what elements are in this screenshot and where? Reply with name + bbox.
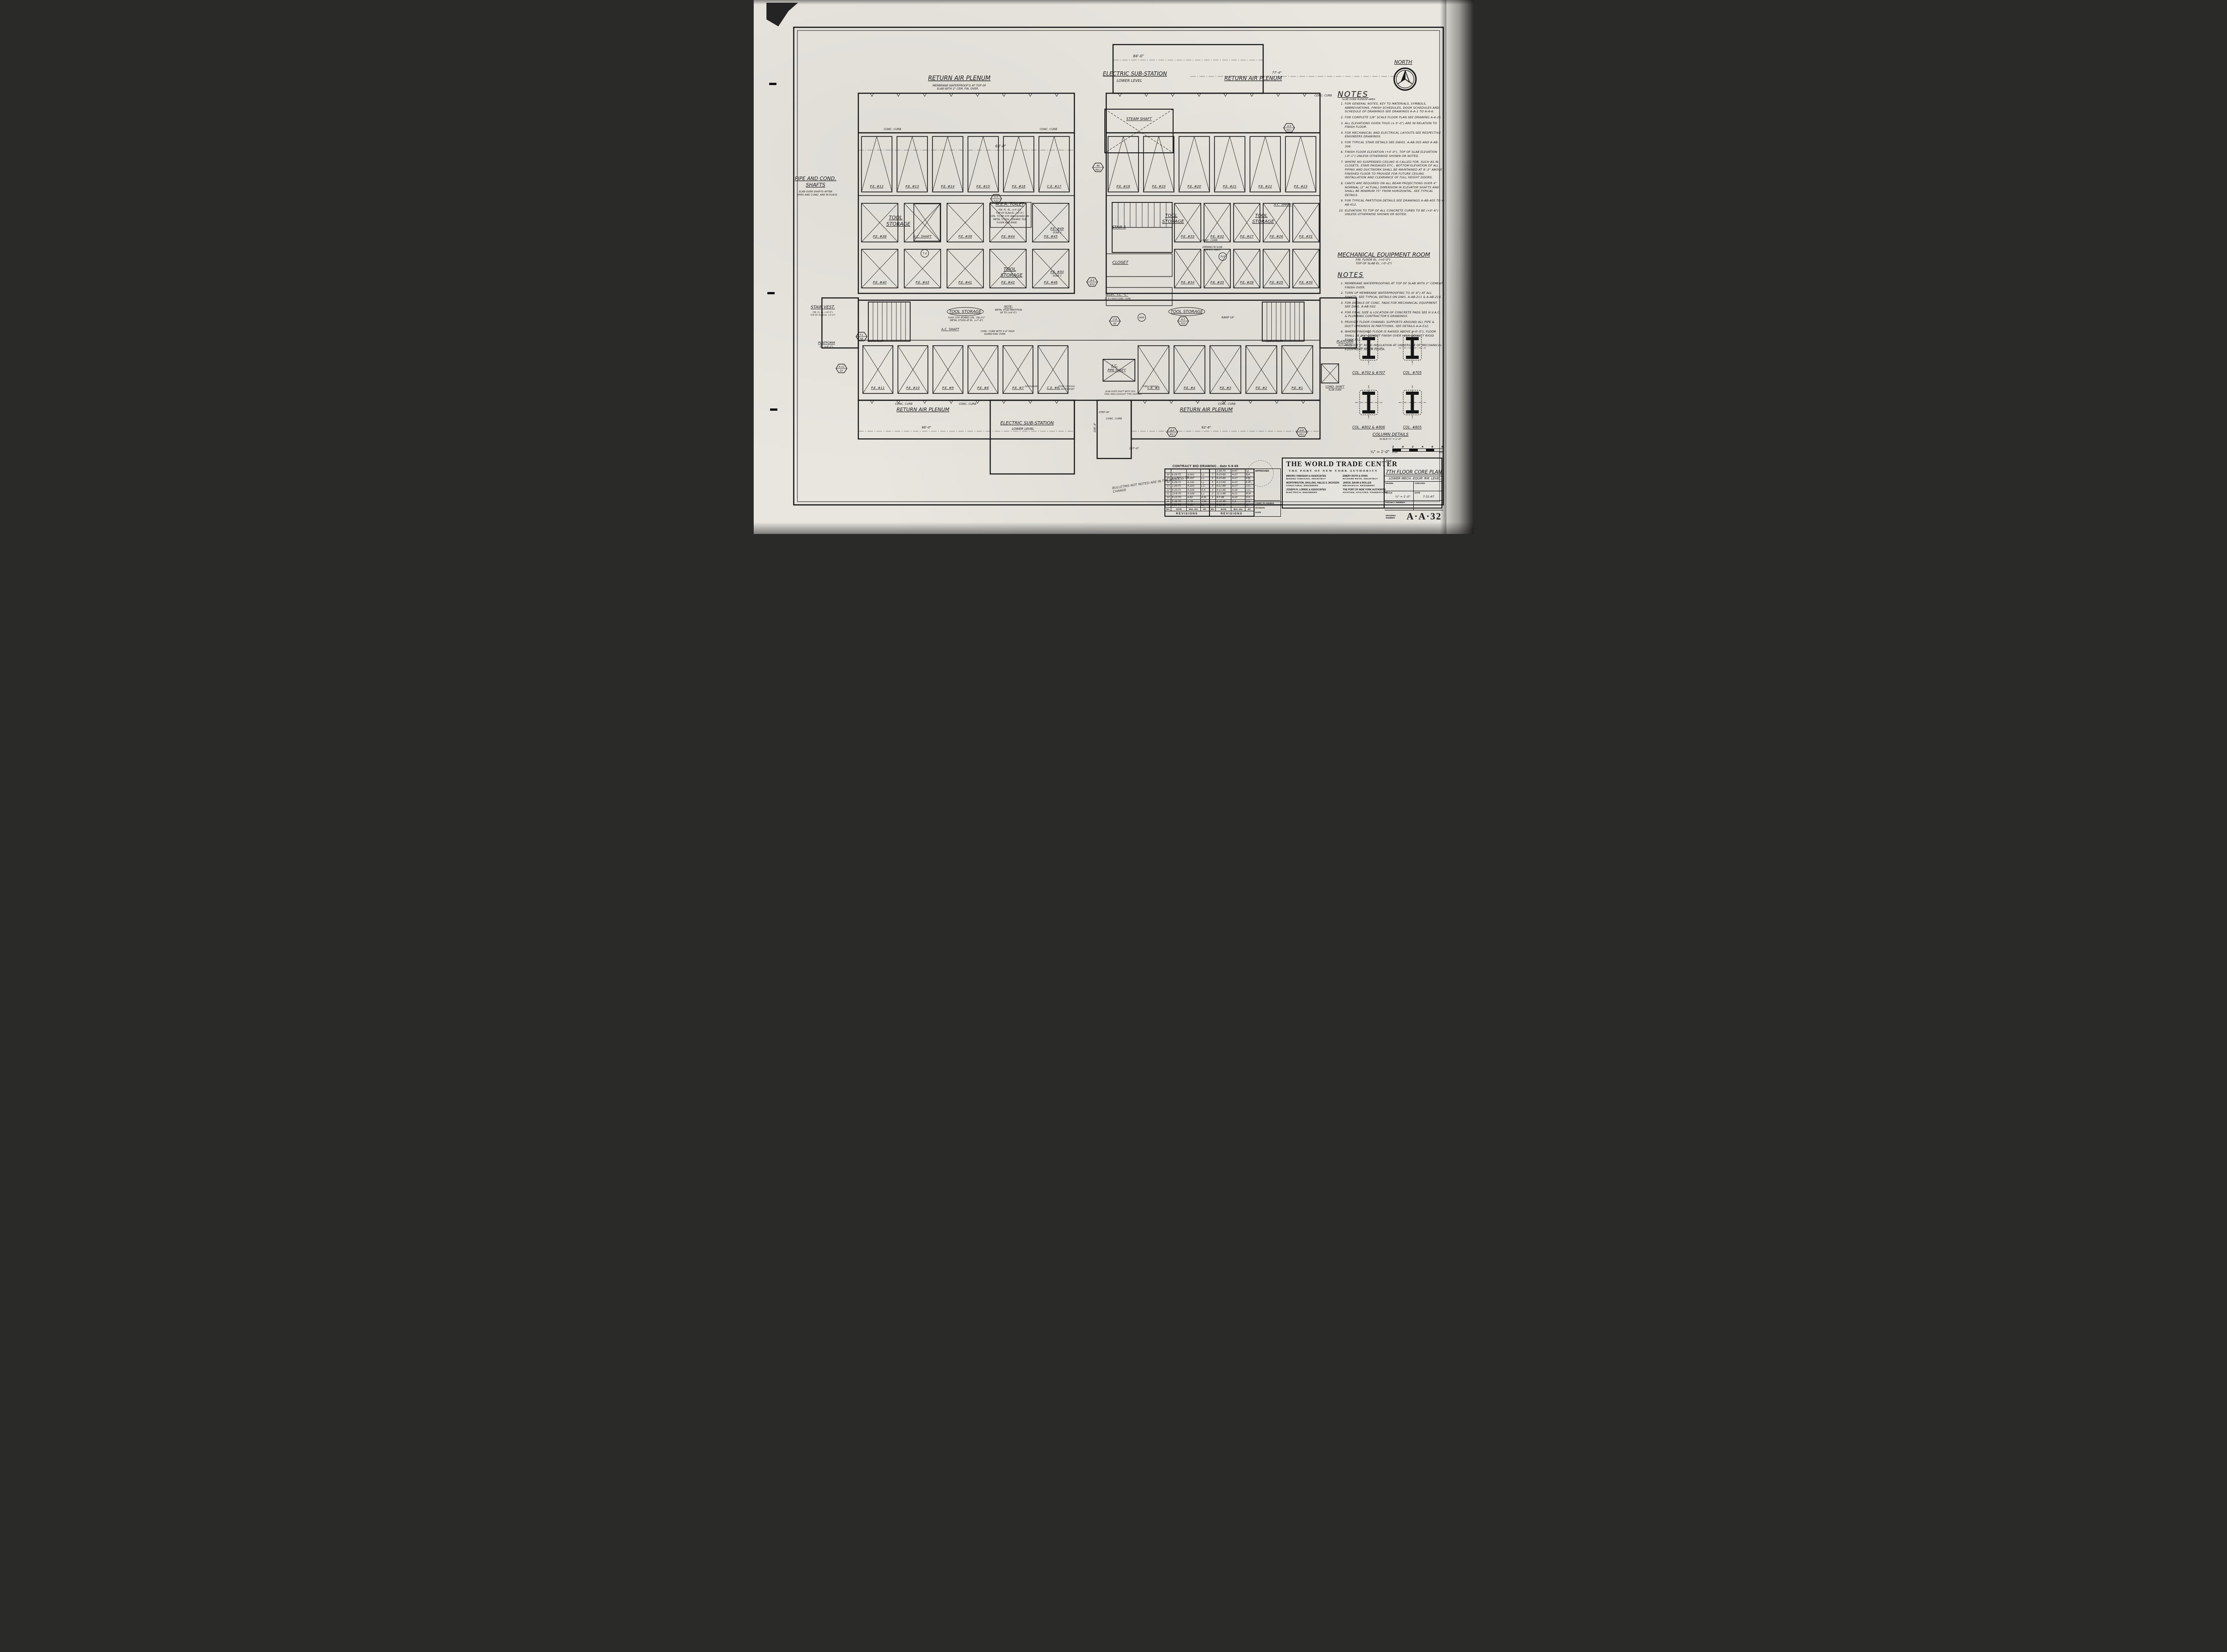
mer-elevation-line: TOP OF SLAB EL. (-0'-2") (1356, 262, 1443, 265)
revision-cell: D.G. (1245, 500, 1254, 504)
shaft-label: P.E. #9 (942, 386, 954, 390)
firm-list-left: MINORU YAMASAKI & ASSOCIATESMINORU YAMAS… (1286, 475, 1340, 495)
shaft-box (1003, 136, 1034, 192)
shaft-label: P.E. #38 (873, 234, 887, 238)
shaft-label: C.E. #6 (1047, 386, 1059, 390)
plan-label: TOP OF SLAB EL. (-0'-2") (810, 314, 835, 317)
shaft-label: P.E. #26 (1270, 234, 1283, 238)
shaft-mark (877, 136, 892, 192)
north-label: NORTH (1394, 59, 1412, 65)
col-detail-label: COL. #705 (1403, 371, 1421, 375)
plan-label: PLATFORM (818, 341, 835, 345)
hex-tag-top: A-4 (1089, 279, 1094, 282)
shaft-box (1039, 136, 1069, 192)
shaft-box (1179, 136, 1209, 192)
revision-cell: 10 (1165, 496, 1171, 499)
mer-elevations: FIN. FLOOR EL. (+0'-0")TOP OF SLAB EL. (… (1338, 258, 1443, 265)
plan-label: FIN. FL. EL. (+0'-2") (998, 209, 1021, 212)
note-item: FOR COMPLETE 1/8" SCALE FLOOR PLAN SEE D… (1345, 116, 1445, 120)
scan-artifact (767, 292, 775, 294)
revision-cell: 6-11-69 (1216, 484, 1231, 488)
revision-cell: L.J. (1200, 504, 1209, 507)
revision-cell: M.M. (1245, 492, 1254, 496)
shaft-mark (1194, 136, 1209, 192)
blueprint-sheet: P.E. #12P.E. #13P.E. #14P.E. #15P.E. #16… (754, 0, 1474, 534)
plan-label: ELECTRIC SUB-STATION (1103, 71, 1167, 77)
dimension-lines (858, 60, 1400, 431)
hex-tag-bottom: A1 (1113, 322, 1116, 325)
shaft-mark (862, 136, 877, 192)
shaft-label: P.E. #41 (958, 280, 972, 284)
shaft-label: P.E. #31 (1299, 234, 1313, 238)
bubble-label: 7·2 (922, 252, 927, 255)
revision-cell: A-27 (1231, 473, 1245, 477)
revision-cell: A-17 (1231, 477, 1245, 480)
revision-cell: 1 (1209, 496, 1216, 499)
revision-cell: A-17 (1231, 484, 1245, 488)
shaft-label: P.E. #39 (958, 234, 972, 238)
col-details-scale: SCALE ¾" = 1'-0" (1379, 438, 1401, 441)
scale-unit-left: scale (1392, 452, 1398, 454)
bubble-label: 707 (1220, 256, 1225, 258)
plan-label: 86'-0" (922, 426, 931, 429)
plan-label: FOR A.C. DUCT (1204, 249, 1221, 252)
revision-cell: L.J. (1200, 481, 1209, 484)
title-label: TITLE (1386, 459, 1392, 462)
plan-label: A.C. (1110, 364, 1117, 368)
plan-label: STEP UP (1098, 411, 1109, 414)
hex-tag-top: A-7 (1180, 318, 1185, 321)
project-title: THE WORLD TRADE CENTER (1286, 460, 1381, 468)
revision-cell: 6 (1209, 477, 1216, 480)
scan-edge (754, 522, 1474, 534)
plan-label: M.E.R. TOILET (995, 202, 1024, 207)
shaft-label: P.E. #44 (1001, 234, 1015, 238)
hex-tag-top: T-1 (860, 334, 863, 337)
shaft-label: P.E. #35 (1210, 280, 1224, 284)
shaft-mark (1214, 136, 1230, 192)
plan-label: EL. (+4'-1") (820, 346, 833, 348)
plan-label: RAMP UP (1221, 316, 1234, 319)
revision-cell: 8-23-69 (1216, 477, 1231, 480)
plan-label: SUSP. GYP. BOARD CEIL. ON 2½" (948, 316, 985, 319)
checked-label: CHECKED (1415, 482, 1425, 484)
stairs (868, 202, 1304, 341)
shaft-label: P.E. #45 (1044, 234, 1058, 238)
revision-cell: 9-23-69 (1216, 473, 1231, 477)
revision-cell: 2 (1209, 492, 1216, 496)
col-detail-label: COL. #702 & #707 (1352, 371, 1385, 375)
plan-label: TOP OF SLAB EL. (-0'-3") (996, 212, 1023, 215)
notes-list: FOR GENERAL NOTES, KEY TO MATERIALS, SYM… (1345, 102, 1445, 217)
plan-label: 63'-0" (995, 144, 1006, 148)
shaft-label: P.E. #8 (977, 386, 989, 390)
hex-tag-bottom: D7 (840, 370, 843, 373)
hex-tag-bottom: M11 (1169, 433, 1175, 436)
revision-cell: 7 (1209, 473, 1216, 477)
shaft-label: P.E. #2 (1255, 386, 1267, 390)
shaft-mark (932, 136, 948, 192)
shaft-box (932, 136, 963, 192)
revision-cell: L.J. (1200, 473, 1209, 477)
shaft-box (862, 136, 892, 192)
shaft-label: P.E. #7 (1012, 386, 1024, 390)
plan-label: TOOL (1255, 213, 1267, 218)
plan-label: CLOSET (1112, 261, 1129, 265)
shaft-label: P.E. #34 (1181, 280, 1194, 284)
plan-label: CONC. CURB (1039, 128, 1057, 131)
shaft-label: A.C. SHAFT (912, 234, 932, 238)
plan-label: ELECTRIC SUB-STATION (1000, 421, 1054, 426)
plan-label: COND. SHAFT (1325, 385, 1345, 388)
plan-label: RETURN AIR PLENUM (928, 75, 990, 82)
note-item: TURN UP MEMBRANE WATERPROOFING TO (0'-6"… (1345, 291, 1443, 299)
shaft-label: P.E. #33 (1181, 234, 1194, 238)
note-item: ALL ELEVATIONS GIVEN THUS (± 0'-0") ARE … (1345, 121, 1445, 129)
shaft-label: P.E. #23 (1294, 184, 1307, 188)
note-item: FOR MECHANICAL AND ELECTRICAL LAYOUTS SE… (1345, 131, 1445, 139)
note-item: FOR DETAILS OF CONC. PADS FOR MECHANICAL… (1345, 301, 1443, 309)
plan-label: LIMIT OF SHAFT (867, 340, 884, 343)
plan-label: P.E. #50 (1050, 270, 1064, 274)
revision-cell: A.W. (1200, 496, 1209, 499)
plan-label: 108'-4" (1093, 423, 1097, 433)
shaft-label: P.E. #1 (1291, 386, 1303, 390)
shaft-label: P.E. #14 (941, 184, 954, 188)
revision-cell: 8-13-70 (1171, 496, 1187, 499)
plan-label: LOWER LEVEL (1116, 79, 1142, 83)
shaft-label: P.E. #40 (873, 280, 887, 284)
revision-cell: A-18 (1231, 488, 1245, 492)
firm-entry: JAROS, BAUM & BOLLESMECHANICAL ENGINEERS (1343, 482, 1388, 487)
revision-cell: A-104 (1187, 488, 1200, 492)
shaft-label: P.E. #30 (1299, 280, 1313, 284)
firm-entry: WORTHINGTON, SKILLING, HELLE & JACKSONST… (1286, 482, 1340, 487)
revision-cell: 6-11-69 (1216, 488, 1231, 492)
shaft-mark (1265, 136, 1280, 192)
shaft-label: P.E. #12 (870, 184, 883, 188)
plan-label: 84'-0" (1133, 54, 1144, 58)
sheet-subtitle: LOWER MECH. EQUIP. RM. LEVEL (1385, 476, 1443, 482)
plan-label: TOOL (1165, 213, 1177, 218)
plan-label: SLAB WITH 2" CEM. FIN. OVER. (937, 87, 979, 91)
scale-value: ¼" = 1'-0" (1395, 495, 1411, 499)
firm-entry: MINORU YAMASAKI & ASSOCIATESMINORU YAMAS… (1286, 475, 1340, 480)
revision-cell: J.V.L. (1245, 488, 1254, 492)
shaft-mark (1300, 136, 1316, 192)
revision-cell: 1-30-70 (1216, 469, 1231, 473)
hex-tag-bottom: M11 (1299, 433, 1305, 436)
notes-title: NOTES (1338, 90, 1445, 99)
note-item: ELEVATION TO TOP OF ALL CONCRETE CURBS T… (1345, 209, 1445, 217)
project-number-label: PROJECT NUMBER (1386, 501, 1405, 504)
note-item: PROVIDE FLOOR CHANNEL SUPPORTS AROUND AL… (1345, 320, 1443, 328)
revision-header: BUL. NO. (1231, 507, 1245, 511)
graphic-scale: ¼" = 1'-0" 202468 scale feet (1370, 446, 1443, 454)
firm-list-right: EMERY ROTH & SONSRICHARD ROTH, ARCHITECT… (1343, 475, 1388, 495)
plan-label: RETURN AIR PLENUM (1179, 407, 1233, 413)
project-owner: THE PORT OF NEW YORK AUTHORITY (1286, 469, 1381, 473)
shaft-box (968, 136, 998, 192)
hex-tag-bottom: M11 (1095, 169, 1101, 171)
revision-cell (1200, 469, 1209, 473)
hex-tag-bottom: F10 (994, 200, 999, 203)
plan-label: METAL STUDS; CERAMIC TILE (993, 218, 1027, 221)
col-detail-label: COL. #802 & #806 (1352, 425, 1385, 429)
plan-label: MEMBRANE WATERPROOF'G AT TOP OF (932, 84, 986, 87)
revisions-caption: REVISIONS (1165, 511, 1209, 516)
mer-title: MECHANICAL EQUIPMENT ROOM (1338, 251, 1443, 258)
note-item: FOR TYPICAL PARTITION DETAILS SEE DRAWIN… (1345, 199, 1445, 206)
date-label: DATE (1255, 512, 1261, 514)
revision-cell (1209, 500, 1216, 504)
hex-tag-bottom: 5B (860, 338, 863, 341)
shaft-label: P.E. #43 (916, 280, 929, 284)
plan-label: UP TO (+8'-0") (1000, 312, 1017, 314)
revision-cell: 1-26-70 (1171, 504, 1187, 507)
revision-cell: A-2 (1231, 500, 1245, 504)
shaft-mark (1285, 136, 1301, 192)
shaft-label: P.E. #22 (1258, 184, 1272, 188)
revision-cell: A-11 (1231, 492, 1245, 496)
plan-label: CONC. CURB (895, 403, 912, 406)
revision-header: BY (1200, 507, 1209, 511)
plan-label: PIPE SHAFT (1108, 368, 1126, 372)
shaft-mark (947, 136, 963, 192)
plan-label: GUARD RAIL OVER (984, 333, 1005, 336)
shaft-mark (1018, 136, 1034, 192)
plan-label: STAIR VEST. (811, 305, 835, 310)
hex-tag-bottom: F10 (1181, 322, 1186, 325)
hex-tag-top: A-6 (1169, 429, 1174, 432)
shaft-mark (1179, 136, 1194, 192)
plan-label: CONC. CURB (958, 403, 976, 406)
plan-label: CONC. CURB (1218, 403, 1235, 406)
hex-tag-bottom: E10 (1089, 283, 1094, 286)
drawing-number-label: DRAWING NUMBER (1386, 514, 1406, 519)
shaft-label: P.E. #10 (906, 386, 920, 390)
mer-notes-block: MECHANICAL EQUIPMENT ROOM FIN. FLOOR EL.… (1338, 251, 1443, 353)
revision-cell (1165, 469, 1171, 473)
shaft-mark (1250, 136, 1265, 192)
shaft-mark (1108, 136, 1124, 192)
revision-cell: A.W. (1200, 500, 1209, 504)
date-value: 7-31-67 (1423, 495, 1434, 499)
plan-label: STORAGE (886, 221, 910, 227)
revision-cell: A-10 (1231, 496, 1245, 499)
revision-cell: 6-10-71 (1171, 488, 1187, 492)
plan-label: ZONE I SERVICE (1058, 385, 1074, 388)
shaft-box (1214, 136, 1245, 192)
note-item: FOR FINAL SIZE & LOCATION OF CONCRETE PA… (1345, 311, 1443, 318)
hex-tag-top: 46 (1096, 165, 1099, 167)
shaft-mark (1054, 136, 1069, 192)
plan-label: SLAB OVER SHAFTS AFTER (799, 191, 832, 193)
revision-header: BY (1245, 507, 1254, 511)
shaft-mark (897, 136, 912, 192)
plan-label: & RESTAURANT (1058, 388, 1075, 391)
revision-cell (1209, 469, 1216, 473)
revision-header: NO. (1209, 507, 1216, 511)
shaft-label: P.E. #16 (1012, 184, 1025, 188)
drawing-number: A·A·32 (1406, 511, 1441, 522)
plan-label: SHAFTS (806, 182, 825, 188)
plan-label: A.C. SHAFT (1273, 203, 1292, 206)
revision-cell: J.V.L. (1245, 484, 1254, 488)
shaft-label: P.E. #3 (1219, 386, 1231, 390)
revision-cell: A-222 (1187, 484, 1200, 488)
revisions-caption: REVISIONS (1209, 511, 1254, 516)
shaft-label: P.E. #28 (1240, 280, 1254, 284)
revision-cell: 9 (1165, 500, 1171, 504)
shaft-box (1144, 136, 1174, 192)
north-arrow-icon: NORTH (1394, 59, 1416, 90)
elevator-shafts: P.E. #12P.E. #13P.E. #14P.E. #15P.E. #16… (862, 136, 1319, 393)
revision-cell: 8 (1165, 504, 1171, 507)
plan-label: LOWER LEVEL (1012, 427, 1034, 431)
plan-label: ELEC. CL. "C" (1107, 293, 1128, 297)
chief-label: CHIEF, PLANNING DIVISION (1255, 503, 1275, 509)
plan-label: STORAGE (1162, 219, 1184, 224)
revision-cell (1209, 504, 1216, 507)
revision-cell: A-106 (1187, 492, 1200, 496)
sheet-title: 7TH FLOOR CORE PLAN (1386, 469, 1442, 475)
revision-header: BUL. NO. (1187, 507, 1200, 511)
firm-entry: JOSEPH R. LORING & ASSOCIATESELECTRICAL … (1286, 489, 1340, 494)
plan-label: FIN. FL. EL. (+0'-0") (812, 311, 832, 314)
mer-notes-list: MEMBRANE WATERPROOFING AT TOP OF SLAB WI… (1345, 282, 1443, 352)
plan-label: 62'-6" (1201, 426, 1211, 429)
shaft-mark (1123, 136, 1139, 192)
revision-cell: D.G. (1245, 496, 1254, 499)
plan-label: STORAGE (1252, 219, 1274, 224)
col-detail-label: COL. #805 (1403, 425, 1421, 429)
shaft-label: P.E. #42 (1001, 280, 1015, 284)
revision-cell: A-78 (1187, 500, 1200, 504)
plan-label: LIMIT OF SHAFT (1266, 340, 1283, 343)
plan-label: (2'-6") HIGH CONC. CURB (1104, 297, 1130, 300)
revision-cell: D.S. (1200, 488, 1209, 492)
note-item: WHERE NO SUSPENDED CEILING IS CALLED FOR… (1345, 160, 1445, 180)
shaft-label: P.E. #21 (1223, 184, 1236, 188)
hex-tag-top: C-1 (994, 196, 998, 199)
plan-label: FLOOR AND BASE. (997, 222, 1018, 224)
shaft-box (1285, 136, 1316, 192)
revision-cell: 11-1-68 (1216, 492, 1231, 496)
hex-tag-top: A-12 (838, 366, 844, 368)
general-notes: NOTES FOR GENERAL NOTES, KEY TO MATERIAL… (1338, 90, 1445, 218)
revision-cell: L.C. (1200, 484, 1209, 488)
revision-cell: 5 (1209, 481, 1216, 484)
plan-label: CONC. CURB (1201, 239, 1217, 242)
title-block: THE WORLD TRADE CENTER THE PORT OF NEW Y… (1282, 458, 1442, 509)
shaft-label: P.E. #46 (1044, 280, 1058, 284)
plan-label: 107'-0" (1129, 447, 1139, 450)
plan-label: ZONE 2 (1052, 232, 1061, 234)
scale-bar (1392, 448, 1443, 452)
plan-label: STORAGE (1000, 273, 1023, 278)
plan-label: A.C. SHAFT (941, 327, 959, 331)
shaft-mark (1229, 136, 1245, 192)
note-item: CANTS ARE REQUIRED ON ALL BEAM PROJECTIO… (1345, 181, 1445, 197)
plan-label: P.E. #49 (1050, 227, 1064, 231)
mer-notes-title: NOTES (1338, 272, 1443, 279)
revision-cell: 11 (1165, 492, 1171, 496)
revision-cell: L.J. (1200, 492, 1209, 496)
revision-cell: 5-19-70 (1171, 500, 1187, 504)
shaft-label: P.E. #25 (1270, 280, 1283, 284)
shaft-box (897, 136, 927, 192)
plan-label: PIPES AND COND. ARE IN PLACE. (796, 194, 838, 196)
plan-label: TOOL STORAGE (949, 310, 981, 314)
note-item: WHERE FINISHED FLOOR IS RAISED ABOVE (+0… (1345, 330, 1443, 342)
revision-cell: 4 (1209, 484, 1216, 488)
note-item: PROVIDE 2" RIGID INSULATION AT UNDERSIDE… (1345, 343, 1443, 351)
plan-label: TOOL (888, 215, 902, 221)
revision-cell: 6-13-69 (1216, 481, 1231, 484)
revision-cell: 16 (1165, 473, 1171, 477)
shaft-mark (968, 136, 983, 192)
plan-label: CONC. CURB (1106, 418, 1122, 420)
revision-cell: A-47 (1231, 469, 1245, 473)
shaft-mark (912, 136, 927, 192)
hex-tag-top: C-8 (1113, 318, 1117, 321)
drawn-label: DRAWN (1386, 482, 1393, 484)
plan-label: CEIL. TO BE GYP. WALLBOARD ON (990, 215, 1029, 218)
revision-cell: J.L. (1245, 504, 1254, 507)
revision-cell: L.J. (1200, 477, 1209, 480)
plan-label: NOTE: (1004, 305, 1013, 308)
plan-label: CONC. CURB (883, 128, 901, 131)
chief-signature-lines: CHIEF, PLANNING DIVISION DATE (1255, 500, 1280, 516)
scale-label: SCALE (1386, 492, 1393, 494)
revision-cell (1171, 469, 1187, 473)
shaft-label: P.E. #15 (976, 184, 990, 188)
col-details-title: COLUMN DETAILS (1372, 433, 1408, 437)
hex-tag-bottom: M11 (1286, 129, 1292, 132)
note-item: FOR TYPICAL STAIR DETAILS SEE DWGS. A-AB… (1345, 141, 1445, 148)
shaft-label: C.E. #17 (1047, 184, 1061, 188)
revision-cell: A-23 (1231, 481, 1245, 484)
revision-cell (1187, 469, 1200, 473)
plan-labels: RETURN AIR PLENUMMEMBRANE WATERPROOF'G A… (795, 54, 1375, 450)
revision-cell: 8-7-68 (1216, 496, 1231, 499)
scan-edge (1441, 0, 1474, 534)
plan-label: ZONE I SERVICE (1141, 385, 1158, 388)
plan-label: CONC. CURB (1314, 94, 1331, 97)
shaft-label: P.E. #19 (1152, 184, 1165, 188)
plan-label: RETURN AIR PLENUM (1224, 75, 1282, 81)
bubble-label: 805 (1139, 317, 1144, 319)
shaft-label: P.E. #18 (1116, 184, 1130, 188)
plan-label: RETURN AIR PLENUM (896, 407, 949, 413)
shaft-mark (1039, 136, 1054, 192)
plan-label: STEAM SHAFT (1126, 117, 1152, 121)
plan-label: SLAB OVER (1328, 389, 1341, 392)
plan-label: ZONE 2 (1052, 275, 1061, 277)
revision-cell: 3 (1209, 488, 1216, 492)
hex-tag-top: A-8 (1299, 429, 1304, 432)
note-item: FINISH FLOOR ELEVATION (+0'-0"), TOP OF … (1345, 150, 1445, 158)
revision-header: DATE (1171, 507, 1187, 511)
plan-label: PIPE AND COND. (795, 176, 836, 181)
note-item: FOR GENERAL NOTES, KEY TO MATERIALS, SYM… (1345, 102, 1445, 114)
plan-label: FREE AREA EXHAUST TYPE GRATING (1104, 393, 1142, 396)
note-item: MEMBRANE WATERPROOFING AT TOP OF SLAB WI… (1345, 282, 1443, 289)
shaft-box (1250, 136, 1280, 192)
scale-handnote: ¼" = 1'-0" (1370, 450, 1390, 454)
firm-entry: EMERY ROTH & SONSRICHARD ROTH, ARCHITECT (1343, 475, 1388, 480)
